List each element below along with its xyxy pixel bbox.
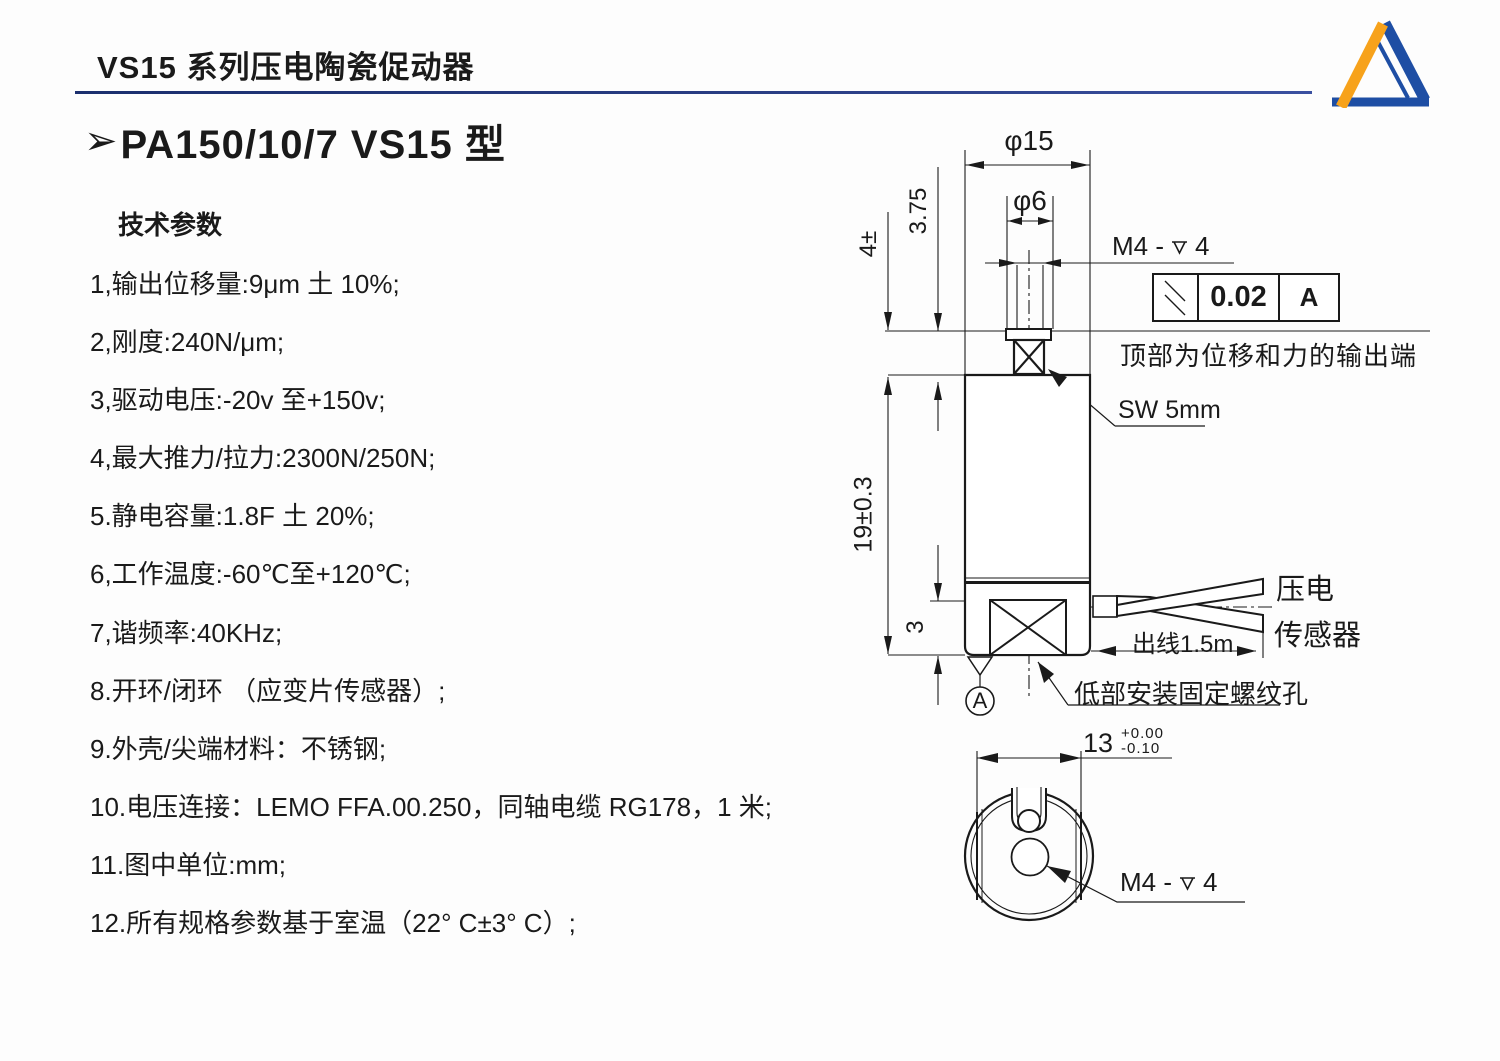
tolerance-upper: +0.00: [1121, 726, 1164, 741]
bottom-hole-note: 低部安装固定螺纹孔: [1074, 674, 1308, 711]
dim-stud-label: 4±: [855, 214, 883, 274]
datasheet-page: VS15 系列压电陶瓷促动器 ➢ PA150/10/7 VS15 型 技术参数 …: [0, 0, 1500, 1061]
tolerance-lower: -0.10: [1121, 741, 1164, 756]
dim-phi6-label: φ6: [970, 185, 1090, 217]
thread-callout-bottom: M4 - 4: [1120, 867, 1217, 898]
thread-size-label: M4 -: [1112, 231, 1164, 262]
thread-depth-label: 4: [1195, 231, 1209, 262]
top-output-note: 顶部为位移和力的输出端: [1120, 336, 1417, 373]
datum-a-label: A: [966, 688, 994, 714]
depth-symbol-icon: [1178, 873, 1197, 892]
tolerance-value: 0.02: [1199, 275, 1280, 320]
depth-symbol-icon: [1170, 237, 1189, 256]
thread-depth-label: 4: [1203, 867, 1217, 898]
sensor-label-line2: 传感器: [1274, 612, 1361, 654]
sensor-label-line1: 压电: [1276, 566, 1334, 608]
tolerance-frame: 0.02 A: [1152, 273, 1340, 322]
wrench-size-label: SW 5mm: [1118, 396, 1221, 425]
cable-length-label: 出线1.5m: [1132, 624, 1233, 659]
tolerance-datum: A: [1280, 275, 1338, 320]
dim-13-tolerance: +0.00 -0.10: [1121, 726, 1164, 756]
thread-size-label: M4 -: [1120, 867, 1172, 898]
dim-thread-length-label: 3.75: [905, 171, 933, 251]
thread-callout-top: M4 - 4: [1112, 231, 1209, 262]
parallelism-symbol-icon: [1154, 275, 1199, 320]
dim-phi15-label: φ15: [969, 125, 1089, 157]
dim-body-height-label: 19±0.3: [850, 455, 879, 575]
dim-bottom-section-label: 3: [902, 607, 930, 647]
dim-across-flats-label: 13: [1083, 728, 1113, 759]
technical-drawing: [0, 0, 1500, 1061]
